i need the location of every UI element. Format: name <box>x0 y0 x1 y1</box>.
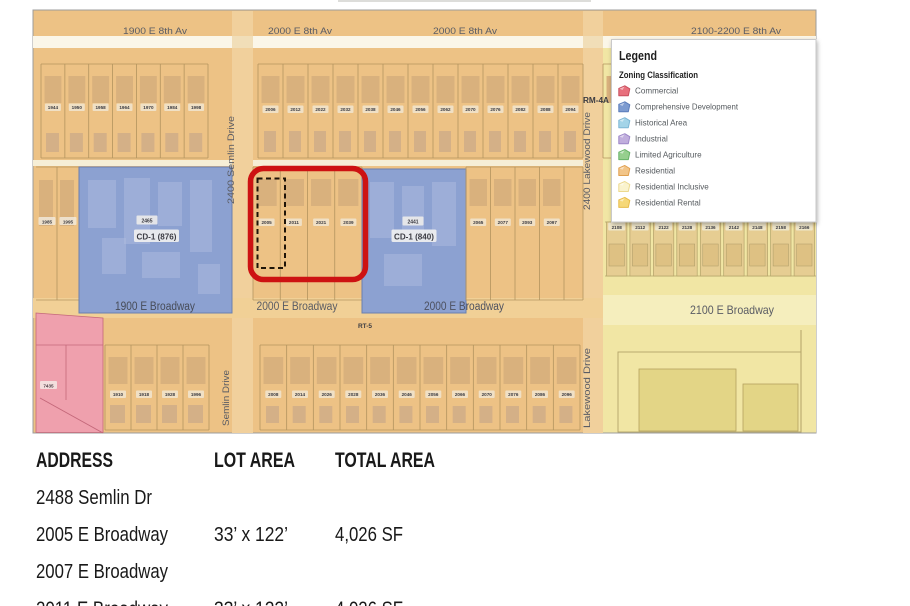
svg-text:2400 Lakewood Drive: 2400 Lakewood Drive <box>582 112 593 210</box>
svg-text:Historical Area: Historical Area <box>635 119 688 128</box>
svg-text:Residential Rental: Residential Rental <box>635 198 701 207</box>
svg-text:2465: 2465 <box>141 219 152 225</box>
svg-text:4,026 SF: 4,026 SF <box>335 524 403 546</box>
svg-text:2000 E Broadway: 2000 E Broadway <box>257 301 338 313</box>
svg-text:2082: 2082 <box>515 107 526 112</box>
svg-text:Comprehensive Development: Comprehensive Development <box>635 103 739 112</box>
svg-text:2038: 2038 <box>365 107 376 112</box>
svg-text:1964: 1964 <box>119 105 130 110</box>
svg-text:2136: 2136 <box>705 225 716 230</box>
svg-text:2108: 2108 <box>612 225 623 230</box>
svg-text:2100-2200 E 8th Av: 2100-2200 E 8th Av <box>691 26 782 36</box>
svg-text:1950: 1950 <box>72 105 83 110</box>
svg-text:33’ x 122’: 33’ x 122’ <box>214 524 288 546</box>
svg-text:2488 Semlin Dr: 2488 Semlin Dr <box>36 487 152 509</box>
svg-text:2000 E Broadway: 2000 E Broadway <box>424 301 504 313</box>
svg-text:2056: 2056 <box>428 392 439 397</box>
svg-text:2008: 2008 <box>268 392 279 397</box>
svg-text:2148: 2148 <box>752 225 763 230</box>
svg-text:2070: 2070 <box>482 392 493 397</box>
svg-text:2100 E Broadway: 2100 E Broadway <box>690 303 774 317</box>
svg-text:2039: 2039 <box>343 220 354 225</box>
svg-text:2028: 2028 <box>348 392 359 397</box>
svg-text:2032: 2032 <box>340 107 351 112</box>
svg-text:1996: 1996 <box>191 392 202 397</box>
svg-text:ADDRESS: ADDRESS <box>36 449 113 472</box>
svg-text:CD-1 (840): CD-1 (840) <box>394 232 434 242</box>
svg-text:2094: 2094 <box>565 107 576 112</box>
svg-text:1910: 1910 <box>113 392 124 397</box>
svg-text:2112: 2112 <box>635 225 645 230</box>
svg-text:33’ x 122’: 33’ x 122’ <box>214 599 288 606</box>
svg-text:2007 E Broadway: 2007 E Broadway <box>36 561 168 583</box>
svg-text:2021: 2021 <box>316 220 327 225</box>
svg-text:2011: 2011 <box>289 220 299 225</box>
svg-text:1984: 1984 <box>167 105 178 110</box>
svg-text:2097: 2097 <box>547 220 558 225</box>
svg-text:2158: 2158 <box>776 225 787 230</box>
svg-text:7435: 7435 <box>43 384 54 389</box>
svg-text:2441: 2441 <box>407 220 418 226</box>
svg-text:2011 E Broadway: 2011 E Broadway <box>36 599 168 606</box>
svg-text:2166: 2166 <box>799 225 810 230</box>
svg-text:RT-5: RT-5 <box>358 323 372 330</box>
svg-text:1918: 1918 <box>139 392 150 397</box>
svg-text:2122: 2122 <box>658 225 669 230</box>
svg-text:2076: 2076 <box>490 107 501 112</box>
svg-text:1958: 1958 <box>95 105 106 110</box>
svg-text:1995: 1995 <box>63 220 74 225</box>
svg-text:2093: 2093 <box>522 220 533 225</box>
svg-text:Limited Agriculture: Limited Agriculture <box>635 151 702 160</box>
svg-text:2056: 2056 <box>415 107 426 112</box>
svg-text:Residential: Residential <box>635 166 675 175</box>
svg-text:2096: 2096 <box>562 392 573 397</box>
svg-text:1998: 1998 <box>191 105 202 110</box>
svg-text:Zoning Classification: Zoning Classification <box>619 70 698 80</box>
svg-text:2006: 2006 <box>265 107 276 112</box>
svg-text:2062: 2062 <box>440 107 451 112</box>
svg-text:Lakewood Drive: Lakewood Drive <box>582 348 593 428</box>
svg-text:2014: 2014 <box>295 392 306 397</box>
svg-text:2065: 2065 <box>473 220 484 225</box>
svg-text:2400 Semlin Drive: 2400 Semlin Drive <box>226 116 237 204</box>
svg-text:Semlin Drive: Semlin Drive <box>221 370 232 426</box>
svg-text:2046: 2046 <box>390 107 401 112</box>
svg-text:2026: 2026 <box>322 392 333 397</box>
svg-text:CD-1 (876): CD-1 (876) <box>137 232 177 242</box>
svg-text:2000 E 8th Av: 2000 E 8th Av <box>268 26 333 36</box>
svg-text:2070: 2070 <box>465 107 476 112</box>
svg-text:2086: 2086 <box>535 392 546 397</box>
svg-text:2142: 2142 <box>729 225 740 230</box>
svg-text:Industrial: Industrial <box>635 135 668 144</box>
svg-text:1985: 1985 <box>42 220 53 225</box>
svg-text:4,026 SF: 4,026 SF <box>335 599 403 606</box>
svg-text:1900 E Broadway: 1900 E Broadway <box>115 301 195 313</box>
svg-text:1944: 1944 <box>48 105 59 110</box>
svg-text:2066: 2066 <box>455 392 466 397</box>
svg-text:2022: 2022 <box>315 107 326 112</box>
svg-text:2077: 2077 <box>498 220 509 225</box>
svg-text:2005: 2005 <box>261 220 272 225</box>
svg-text:Residential Inclusive: Residential Inclusive <box>635 182 709 191</box>
svg-text:1970: 1970 <box>143 105 154 110</box>
svg-text:RM-4A: RM-4A <box>583 96 609 105</box>
svg-text:2088: 2088 <box>540 107 551 112</box>
svg-text:2000 E 8th Av: 2000 E 8th Av <box>433 26 498 36</box>
svg-text:1928: 1928 <box>165 392 176 397</box>
svg-text:Commercial: Commercial <box>635 87 678 96</box>
svg-text:2128: 2128 <box>682 225 693 230</box>
svg-text:Legend: Legend <box>619 49 657 63</box>
svg-text:2012: 2012 <box>290 107 301 112</box>
svg-text:2046: 2046 <box>402 392 413 397</box>
svg-text:TOTAL AREA: TOTAL AREA <box>335 449 435 472</box>
svg-text:2076: 2076 <box>508 392 519 397</box>
svg-text:2036: 2036 <box>375 392 386 397</box>
svg-text:LOT AREA: LOT AREA <box>214 449 295 472</box>
svg-text:2005 E Broadway: 2005 E Broadway <box>36 524 168 546</box>
svg-text:1900 E 8th Av: 1900 E 8th Av <box>123 26 188 36</box>
